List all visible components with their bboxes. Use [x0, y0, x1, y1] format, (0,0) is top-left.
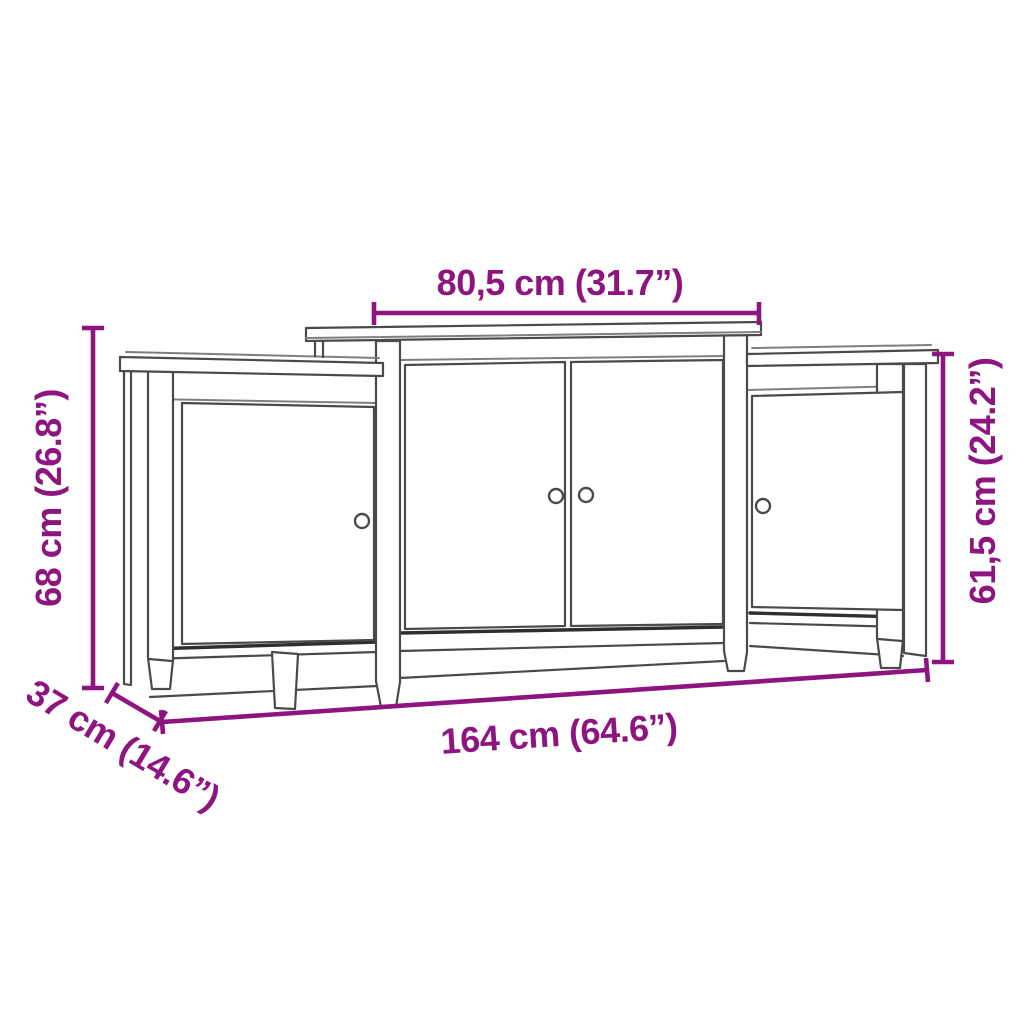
- left-height-dimension-line: [82, 328, 104, 688]
- left-mid-leg: [272, 652, 298, 709]
- dimension-label-right-height: 61,5 cm (24.2”): [965, 358, 1001, 605]
- right-door: [752, 392, 903, 610]
- top-width-dimension-line: [374, 302, 759, 325]
- right-height-dimension-line: [932, 354, 954, 662]
- left-rear-leg: [124, 370, 131, 685]
- centre-left-door-knob: [549, 489, 563, 503]
- left-door: [182, 403, 374, 644]
- left-front-leg: [148, 370, 173, 689]
- diagram-canvas: 80,5 cm (31.7”) 68 cm (26.8”) 61,5 cm (2…: [0, 0, 1024, 1024]
- centre-right-door-knob: [579, 488, 593, 502]
- dimension-label-top-width: 80,5 cm (31.7”): [437, 265, 684, 301]
- sideboard-drawing: [120, 322, 938, 709]
- centre-right-post: [724, 335, 747, 671]
- left-door-knob: [355, 514, 369, 528]
- doors: [182, 360, 903, 644]
- right-door-knob: [756, 499, 770, 513]
- dimension-label-left-height: 68 cm (26.8”): [31, 389, 67, 607]
- centre-left-door: [405, 362, 565, 629]
- centre-left-post: [376, 341, 400, 707]
- right-top-board: [747, 350, 938, 366]
- right-rear-leg: [904, 364, 926, 656]
- furniture-line-drawing: [0, 0, 1024, 1024]
